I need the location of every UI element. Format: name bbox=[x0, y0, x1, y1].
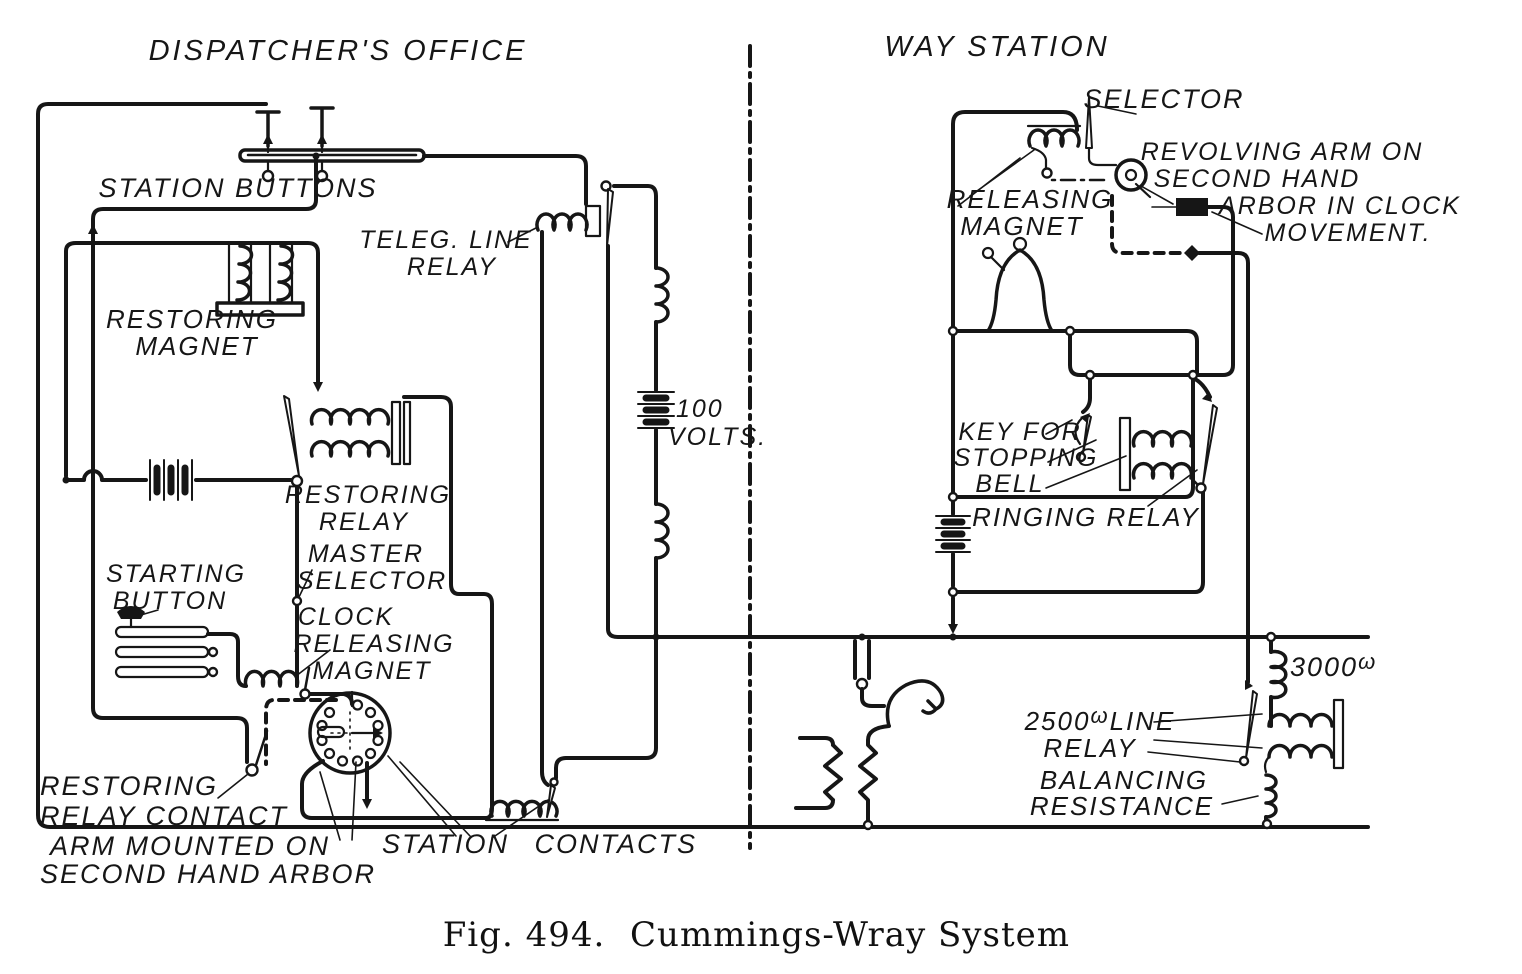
junction bbox=[1263, 820, 1271, 828]
junction bbox=[864, 821, 872, 829]
bell-component bbox=[983, 238, 1052, 331]
hub-center bbox=[1126, 170, 1136, 180]
svg-text:BELL: BELL bbox=[975, 470, 1044, 498]
bell-clapper bbox=[991, 257, 1004, 270]
wire bbox=[1083, 379, 1090, 412]
line-coil bbox=[656, 504, 668, 558]
coil-end-plate bbox=[404, 402, 410, 464]
svg-text:MAGNET: MAGNET bbox=[960, 211, 1083, 241]
wire bbox=[1070, 207, 1233, 375]
restoring-magnet-coil bbox=[237, 246, 252, 300]
label-master-selector: MASTER bbox=[308, 540, 424, 568]
coil-lead bbox=[1032, 148, 1046, 168]
up-arrow-icon bbox=[263, 134, 273, 144]
line-battery-chain bbox=[638, 268, 674, 558]
shunt-resistance-coil bbox=[1271, 652, 1286, 698]
label-station-buttons: STATION BUTTONS bbox=[98, 173, 377, 203]
line-fork-contact bbox=[855, 641, 869, 678]
arrow-icon bbox=[362, 799, 372, 809]
station-buttons-assembly bbox=[240, 108, 424, 181]
receiver-hook bbox=[887, 681, 942, 726]
line-coil bbox=[656, 268, 668, 322]
arrow-icon bbox=[313, 382, 323, 392]
caption-figure-number: Fig. 494. bbox=[443, 915, 606, 955]
junction bbox=[1267, 633, 1275, 641]
svg-text:RELEASING: RELEASING bbox=[293, 630, 454, 658]
battery-plate-thick bbox=[157, 468, 185, 492]
button-lever bbox=[116, 647, 208, 657]
button-stem bbox=[268, 110, 322, 146]
selector-lead bbox=[1089, 148, 1116, 165]
svg-text:MOVEMENT.: MOVEMENT. bbox=[1264, 219, 1431, 247]
label-station-contacts: STATION CONTACTS bbox=[382, 829, 697, 859]
caption: Fig. 494. Cummings-Wray System bbox=[443, 915, 1070, 955]
svg-text:SECOND HAND ARBOR: SECOND HAND ARBOR bbox=[40, 859, 376, 889]
svg-text:RELAY: RELAY bbox=[319, 508, 409, 536]
svg-text:MAGNET: MAGNET bbox=[313, 657, 432, 685]
label-restoring-relay: RESTORING bbox=[285, 481, 451, 509]
line-relay-coil bbox=[1269, 714, 1332, 726]
arrow-icon bbox=[88, 224, 98, 234]
svg-text:ARBOR IN CLOCK: ARBOR IN CLOCK bbox=[1217, 192, 1461, 220]
lever-contact bbox=[209, 648, 217, 656]
coil-lead bbox=[1265, 757, 1269, 772]
svg-text:RELAY CONTACT: RELAY CONTACT bbox=[40, 801, 289, 831]
restoring-relay-coil bbox=[312, 442, 389, 456]
armature-pivot bbox=[1197, 484, 1206, 493]
contact-needle bbox=[305, 668, 309, 690]
label-ringing-relay: RINGING RELAY bbox=[972, 502, 1200, 532]
resistor-zigzag bbox=[796, 738, 841, 808]
line-terminal-group bbox=[796, 641, 943, 829]
armature-pivot bbox=[1240, 757, 1248, 765]
releasing-magnet-coil bbox=[1029, 130, 1079, 146]
wire bbox=[953, 331, 1197, 375]
coil-end-plate bbox=[1120, 418, 1130, 490]
label-revolving-arm: REVOLVING ARM ON bbox=[1141, 138, 1424, 166]
arrow-icon bbox=[948, 624, 958, 634]
wire bbox=[93, 158, 316, 762]
wire bbox=[208, 634, 246, 686]
section-title-left: DISPATCHER'S OFFICE bbox=[149, 35, 528, 67]
svg-text:RESISTANCE: RESISTANCE bbox=[1030, 791, 1214, 821]
svg-text:RELAY: RELAY bbox=[407, 253, 497, 281]
label-starting-button: STARTING bbox=[106, 560, 246, 588]
restoring-relay-coil bbox=[312, 410, 389, 424]
dispatcher-battery bbox=[150, 460, 192, 500]
label-selector: SELECTOR bbox=[1083, 84, 1244, 114]
clock-dial bbox=[310, 692, 390, 773]
svg-text:STOPPING: STOPPING bbox=[954, 444, 1099, 472]
wire bbox=[862, 689, 884, 706]
svg-text:SELECTOR: SELECTOR bbox=[297, 567, 447, 595]
figure-page: DISPATCHER'S OFFICE WAY STATION STATION … bbox=[0, 0, 1522, 974]
ringing-relay-component bbox=[1120, 405, 1217, 493]
wire bbox=[542, 232, 548, 785]
relay-armature-needle bbox=[1203, 405, 1217, 484]
teleg-line-relay-component bbox=[537, 182, 613, 247]
relay-armature-needle bbox=[284, 396, 299, 476]
clock-releasing-coil bbox=[246, 671, 298, 686]
svg-text:MAGNET: MAGNET bbox=[135, 331, 258, 361]
label-teleg-line-relay: TELEG. LINE bbox=[359, 226, 532, 254]
teleg-line-relay-coil bbox=[537, 214, 587, 230]
clapper-ball bbox=[983, 248, 993, 258]
svg-text:RELAY: RELAY bbox=[1043, 733, 1136, 763]
label-key-for-stopping-bell: KEY FOR bbox=[958, 418, 1081, 446]
svg-text:VOLTS.: VOLTS. bbox=[668, 423, 767, 451]
button-lever bbox=[116, 627, 208, 637]
starting-button-assembly bbox=[116, 606, 217, 677]
line-relay-coil bbox=[1269, 745, 1332, 757]
magnet-contact bbox=[301, 690, 310, 699]
contact-needle bbox=[547, 785, 555, 817]
way-station-battery bbox=[936, 516, 970, 552]
diamond-contact bbox=[1184, 245, 1200, 261]
label-releasing-magnet: RELEASING bbox=[947, 184, 1114, 214]
battery-plate-thick bbox=[944, 522, 962, 546]
ringing-relay-coil bbox=[1134, 464, 1192, 478]
restoring-magnet-coil bbox=[278, 246, 293, 300]
label-restoring-magnet: RESTORING bbox=[106, 304, 278, 334]
label-shunt-resistance: 3000ω bbox=[1290, 649, 1377, 682]
svg-text:SECOND HAND: SECOND HAND bbox=[1154, 165, 1361, 193]
circuit-diagram: DISPATCHER'S OFFICE WAY STATION STATION … bbox=[0, 0, 1522, 974]
ringing-relay-coil bbox=[1134, 432, 1192, 446]
resistor-zigzag bbox=[860, 726, 889, 820]
label-arm-mounted: ARM MOUNTED ON bbox=[48, 831, 330, 861]
caption-title: Cummings-Wray System bbox=[630, 915, 1070, 955]
section-title-right: WAY STATION bbox=[884, 31, 1109, 63]
balancing-resistance-coil bbox=[1266, 775, 1276, 817]
svg-text:BUTTON: BUTTON bbox=[113, 587, 227, 615]
releasing-magnet-component bbox=[1028, 126, 1080, 178]
coil-end-plate bbox=[1334, 700, 1343, 768]
label-line-relay: 2500ωLINE bbox=[1024, 703, 1176, 736]
relay-armature-needle bbox=[607, 189, 613, 246]
label-line-voltage: 100 bbox=[676, 395, 724, 423]
arbor-contact-block bbox=[1176, 198, 1208, 216]
label-restoring-relay-contact: RESTORING bbox=[40, 771, 218, 801]
magnet-contact bbox=[1043, 169, 1052, 178]
up-arrow-icon bbox=[317, 134, 327, 144]
coil-end-plate bbox=[392, 402, 400, 464]
label-pointers bbox=[134, 106, 1262, 840]
wire bbox=[424, 156, 586, 204]
label-clock-releasing-magnet: CLOCK bbox=[298, 603, 394, 631]
battery-plate-thick bbox=[646, 398, 666, 422]
lever-contact bbox=[209, 668, 217, 676]
button-lever bbox=[116, 667, 208, 677]
